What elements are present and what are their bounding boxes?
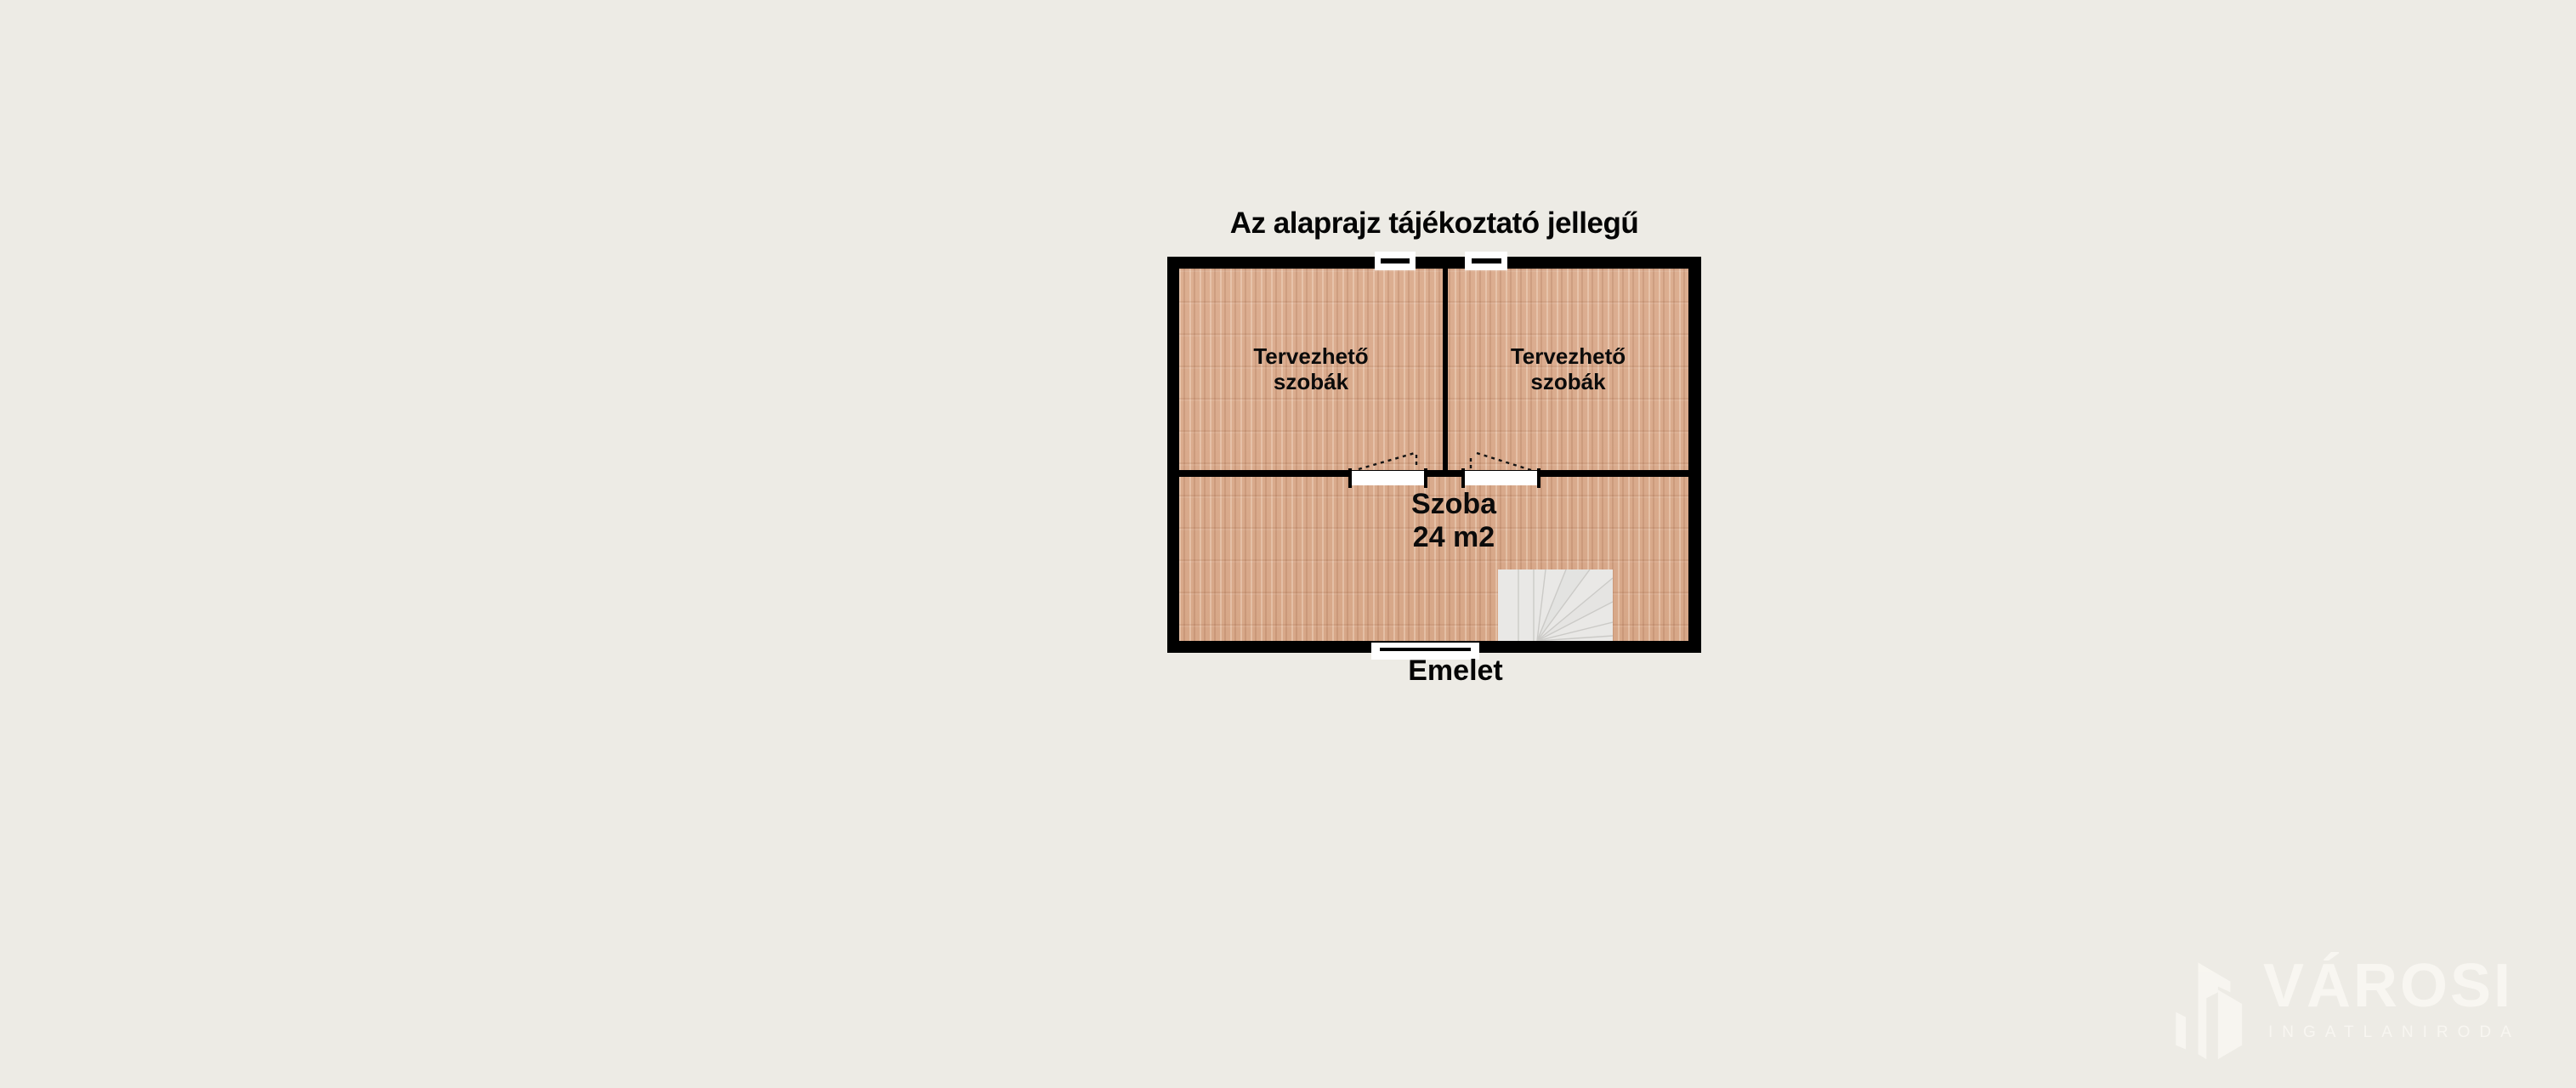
watermark-brand-text: VÁROSI (2263, 955, 2544, 1017)
disclaimer-title: Az alaprajz tájékoztató jellegű (1082, 207, 1786, 241)
floorplan-image: Az alaprajz tájékoztató jellegű Tervezhe… (0, 0, 2576, 1088)
floor-plan: Tervezhető szobák Tervezhető szobák Szob… (1167, 257, 1701, 653)
floor-level-label: Emelet (1302, 654, 1609, 688)
watermark-subtitle-text: INGATLANIRODA (2268, 1023, 2557, 1042)
door-swing-dashes (1167, 257, 1701, 653)
staircase-icon (1498, 569, 1613, 641)
agency-watermark: VÁROSI INGATLANIRODA (2159, 938, 2559, 1066)
city-buildings-icon (2173, 947, 2258, 1062)
